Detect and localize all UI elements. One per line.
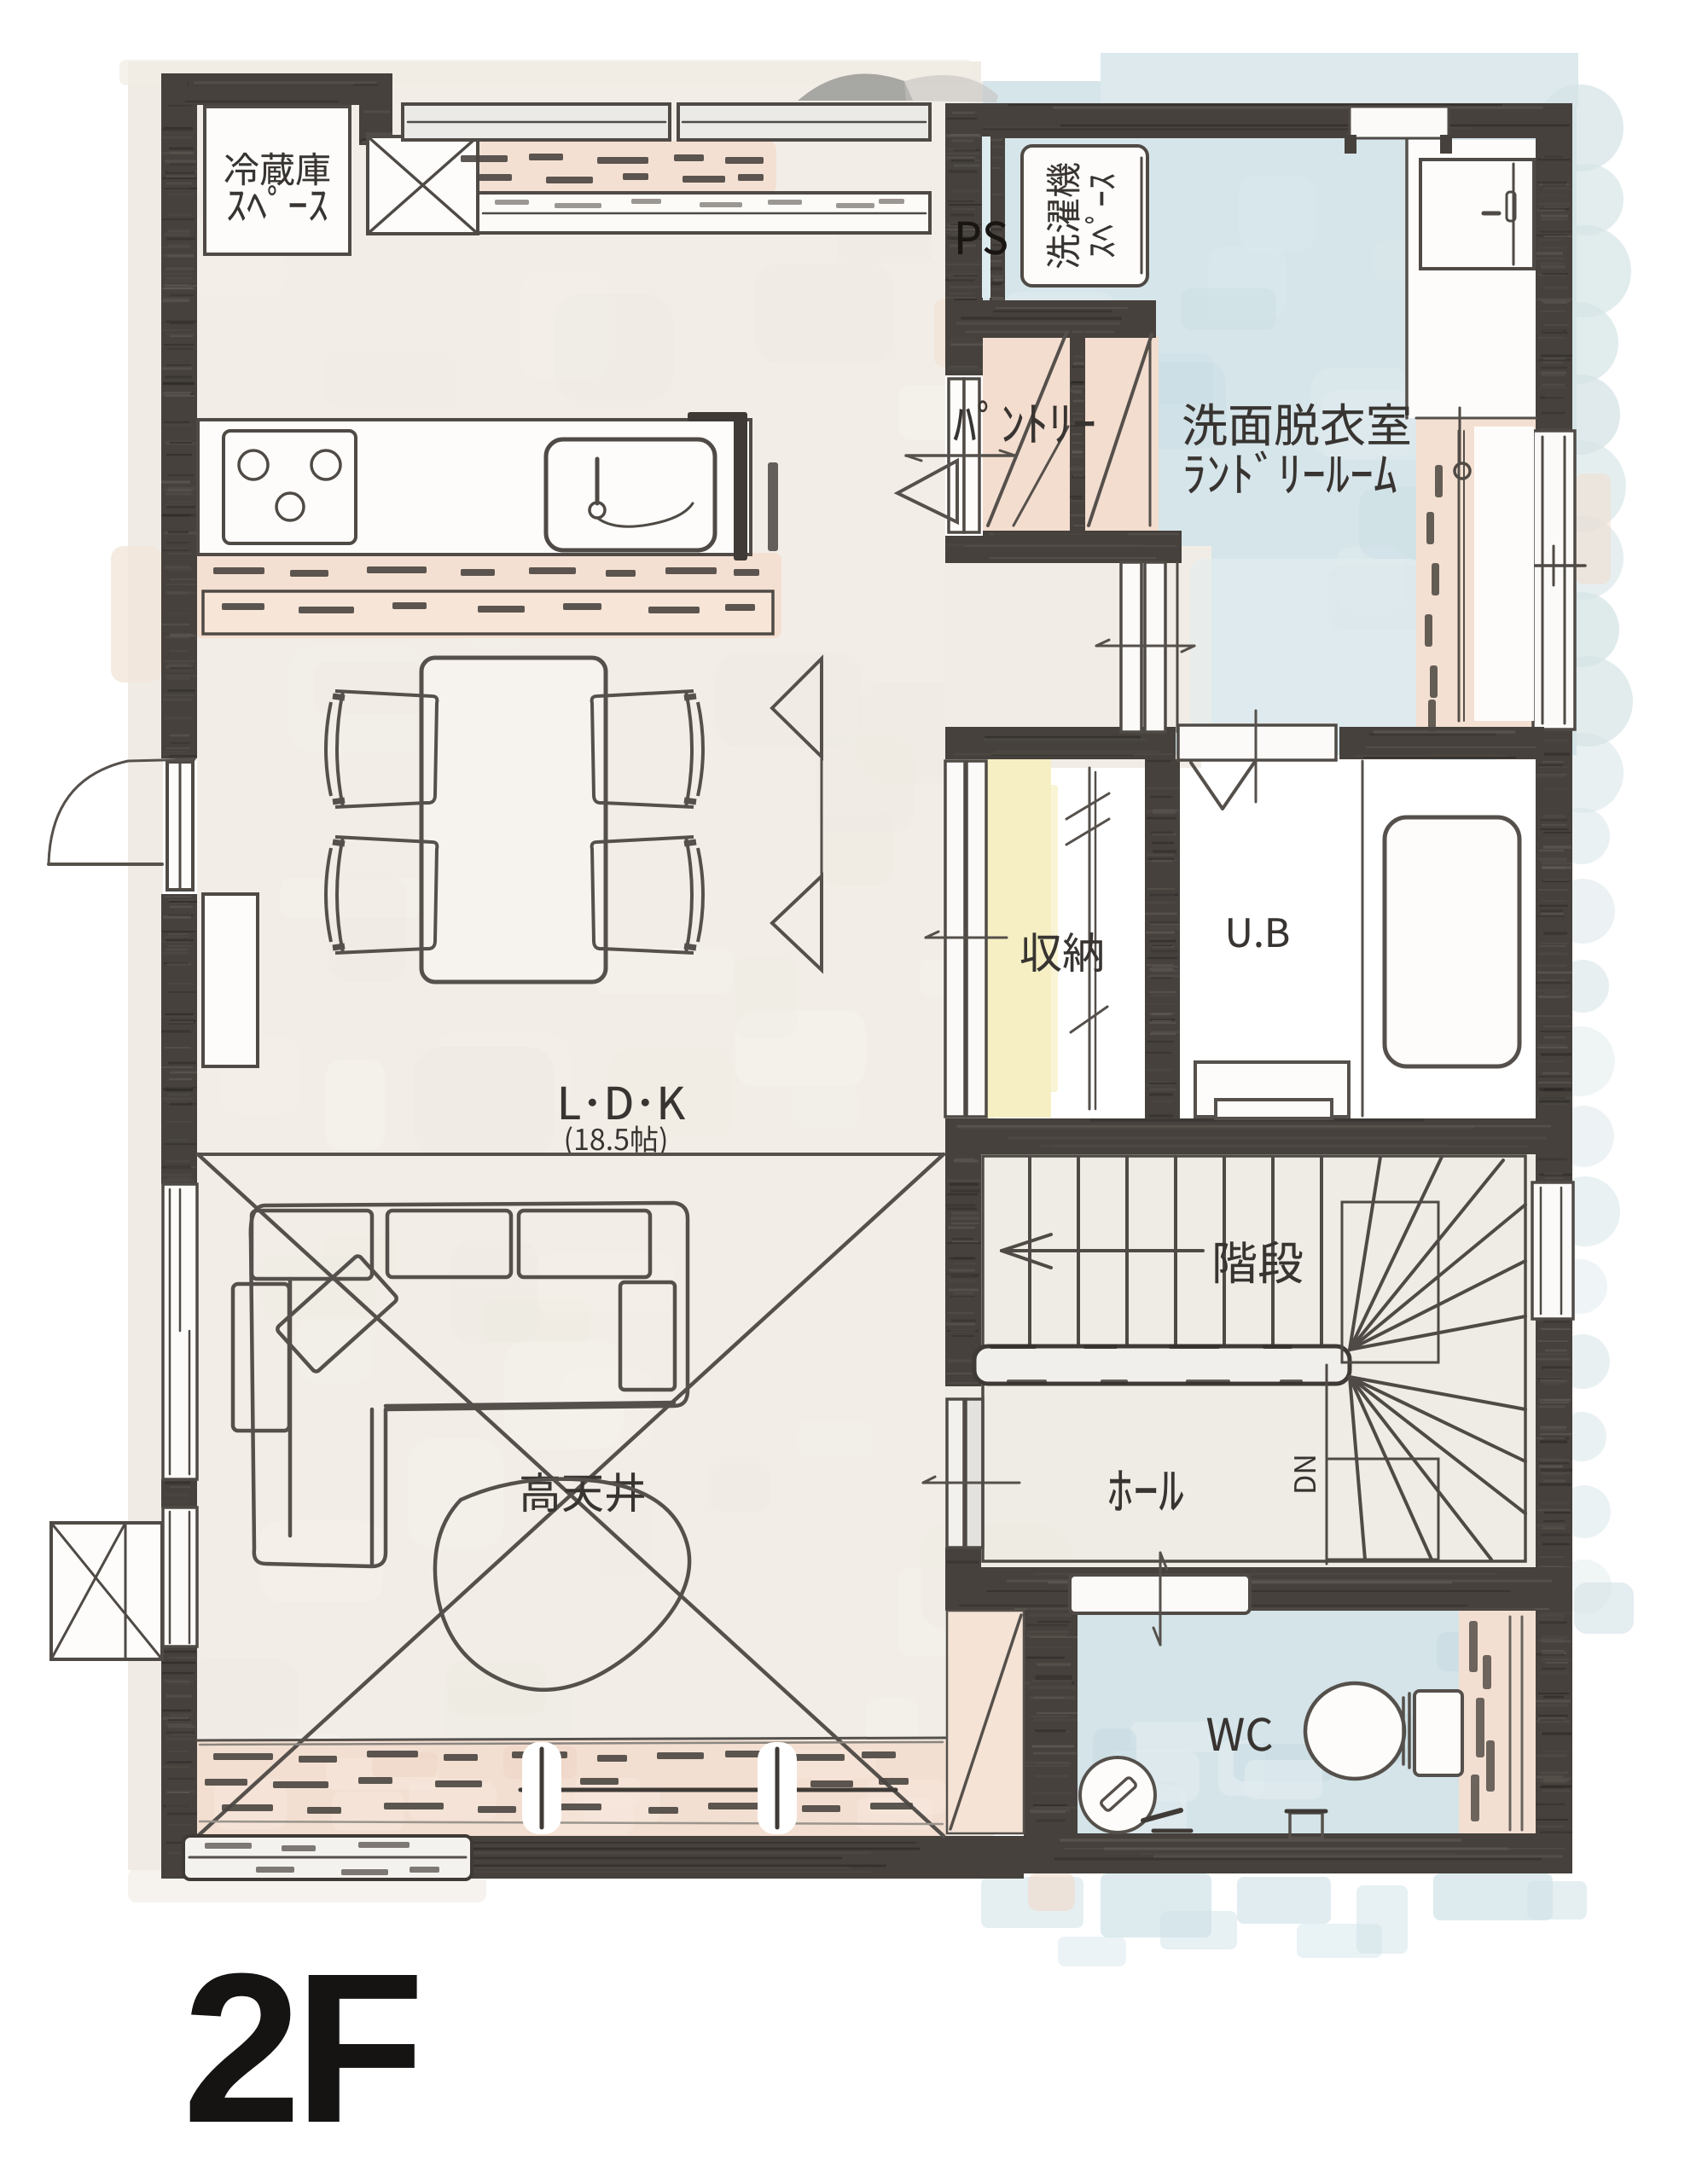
svg-text:2F: 2F <box>183 1929 418 2167</box>
